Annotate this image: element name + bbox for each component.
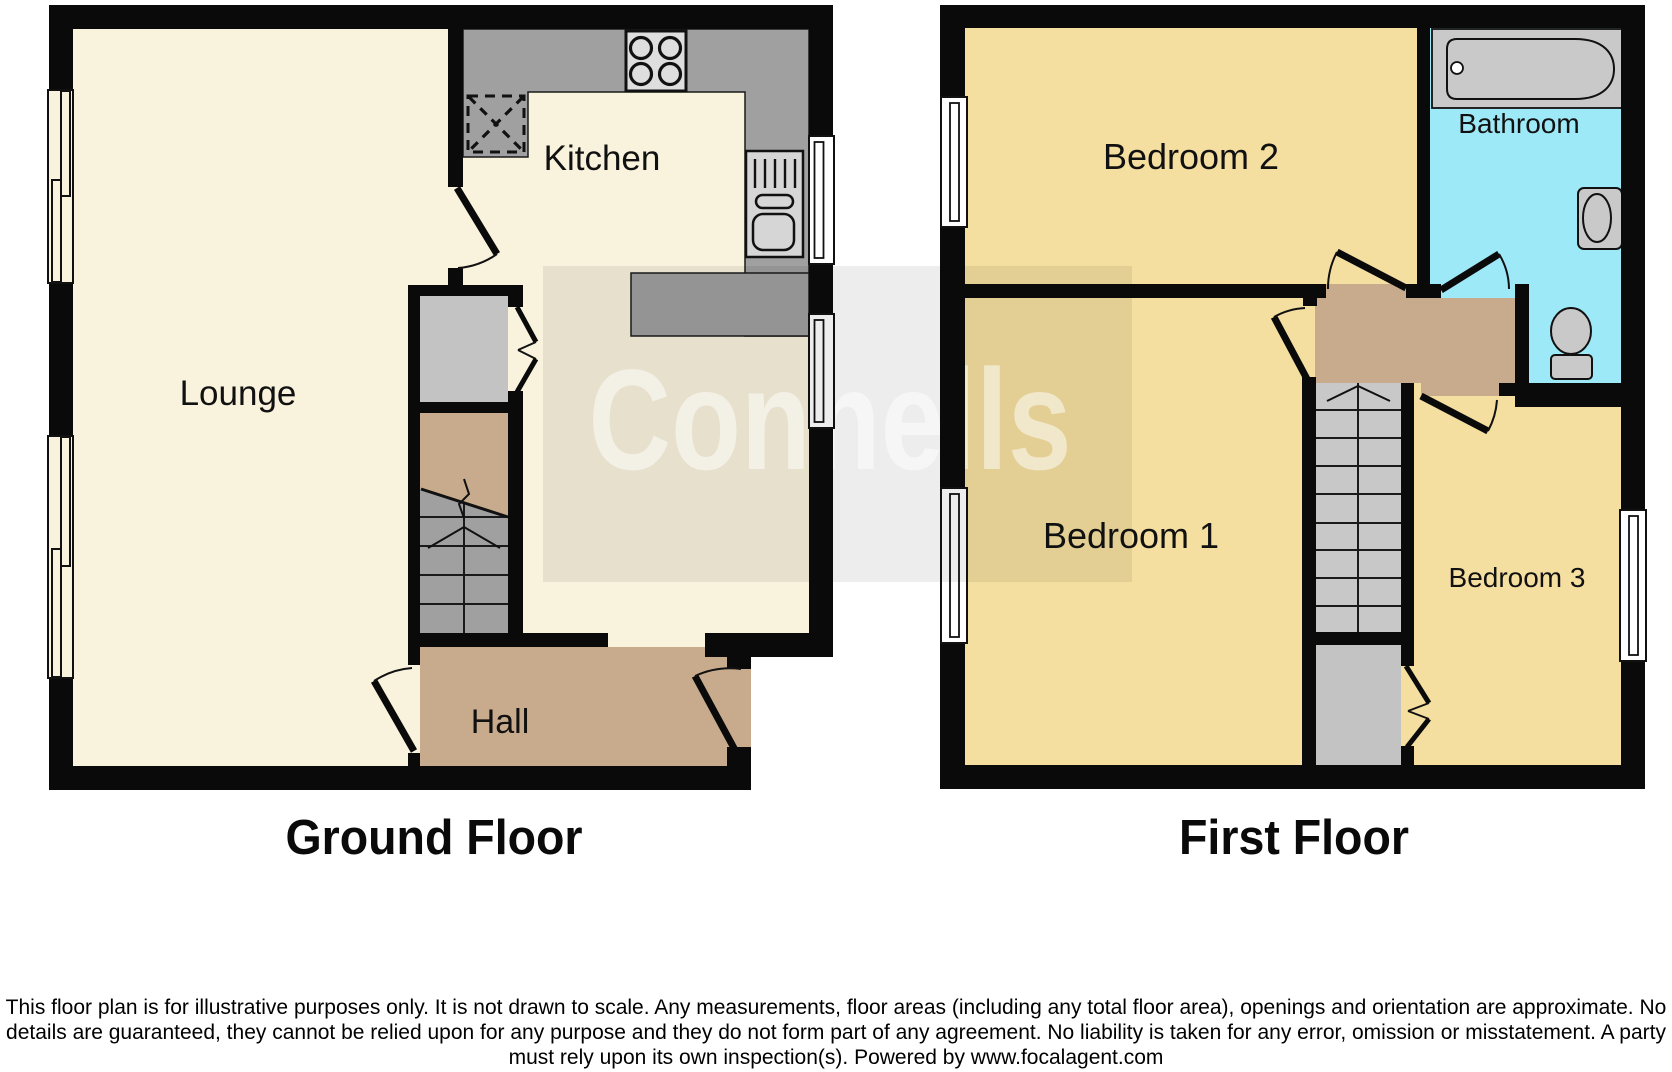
svg-text:Lounge: Lounge bbox=[180, 374, 297, 413]
svg-text:must rely upon its own inspect: must rely upon its own inspection(s). Po… bbox=[509, 1046, 1164, 1069]
svg-text:Bedroom 1: Bedroom 1 bbox=[1043, 515, 1219, 556]
svg-text:details are guaranteed, they c: details are guaranteed, they cannot be r… bbox=[6, 1021, 1666, 1044]
svg-text:Hall: Hall bbox=[471, 703, 530, 741]
svg-text:Ground Floor: Ground Floor bbox=[285, 811, 582, 866]
svg-text:This floor plan is for illustr: This floor plan is for illustrative purp… bbox=[6, 996, 1667, 1019]
svg-text:Kitchen: Kitchen bbox=[544, 139, 661, 178]
svg-text:Bedroom 2: Bedroom 2 bbox=[1103, 136, 1279, 177]
svg-text:Bathroom: Bathroom bbox=[1458, 108, 1579, 139]
svg-text:First Floor: First Floor bbox=[1179, 811, 1409, 866]
svg-text:Bedroom 3: Bedroom 3 bbox=[1449, 562, 1586, 593]
